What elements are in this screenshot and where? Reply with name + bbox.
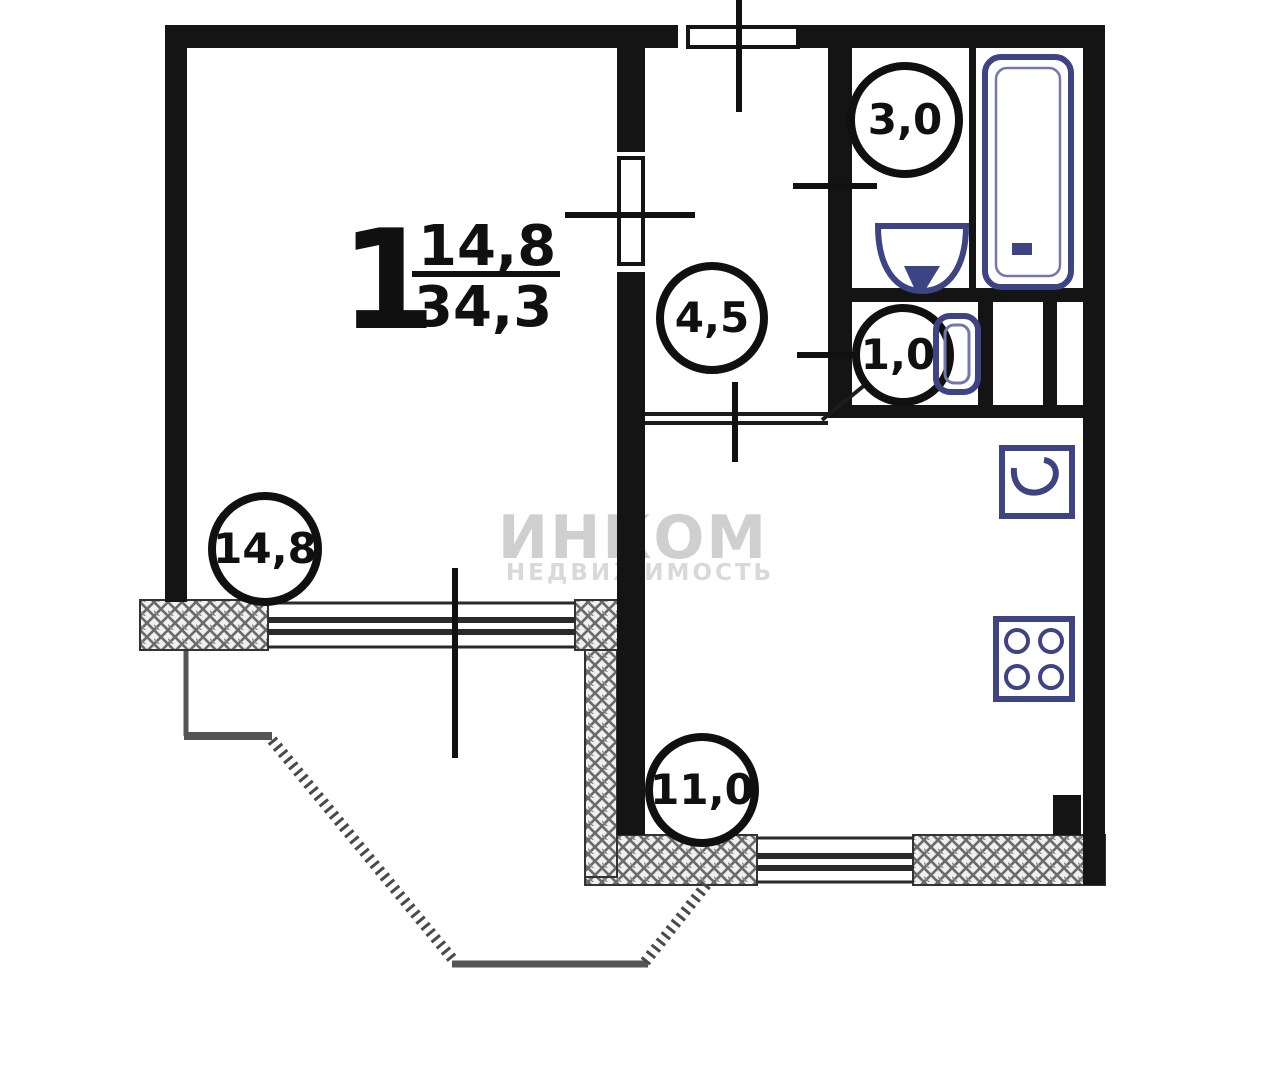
- badge-bathroom: 3,0: [851, 66, 959, 174]
- wall-bathtub-partition: [969, 48, 976, 288]
- washbasin-icon: [878, 226, 966, 292]
- wall-top-left: [165, 25, 678, 48]
- kitchen-window: [757, 838, 913, 882]
- hatch-wall-living-left: [140, 600, 268, 650]
- badge-wc-area: 1,0: [861, 330, 935, 379]
- wall-wc-bottom: [828, 405, 1083, 418]
- living-room-door-leaf: [619, 158, 643, 264]
- wall-bathroom-wc-divider: [852, 288, 1083, 302]
- badge-kitchen-area: 11,0: [650, 765, 754, 814]
- living-room-window: [268, 603, 575, 647]
- badge-living-room: 14,8: [212, 496, 318, 602]
- floor-plan: ИНКОМ НЕДВИЖИМОСТЬ: [0, 0, 1280, 1086]
- hatch-wall-balcony-divider: [585, 650, 617, 877]
- bathtub-drain: [1012, 243, 1032, 255]
- badge-kitchen: 11,0: [649, 737, 755, 843]
- badge-hallway: 4,5: [660, 266, 764, 370]
- hatch-wall-kitchen-right: [913, 835, 1105, 885]
- apartment-label: 1 14,8 34,3: [340, 200, 560, 361]
- badge-hallway-area: 4,5: [675, 293, 749, 342]
- wall-central-upper: [617, 48, 645, 152]
- badge-living-room-area: 14,8: [213, 524, 317, 573]
- wall-top-right: [800, 25, 1105, 48]
- kitchen-sink-icon: [1002, 448, 1072, 516]
- entrance-door-leaf: [688, 27, 798, 47]
- badge-bathroom-area: 3,0: [868, 95, 942, 144]
- living-area-value: 14,8: [418, 214, 556, 279]
- bathtub-icon: [985, 57, 1071, 287]
- doors-and-ticks: [455, 0, 877, 758]
- walls: [165, 25, 1105, 885]
- stove-icon: [996, 619, 1072, 699]
- wall-closet-bar-2: [1043, 302, 1057, 405]
- wall-bathroom-left: [828, 48, 852, 417]
- hatch-wall-living-right: [575, 600, 622, 650]
- wall-left: [165, 25, 187, 602]
- wall-stub-kitchen-window: [1053, 795, 1081, 835]
- wall-central-lower: [617, 272, 645, 835]
- total-area-value: 34,3: [414, 275, 552, 340]
- wall-right: [1083, 25, 1105, 885]
